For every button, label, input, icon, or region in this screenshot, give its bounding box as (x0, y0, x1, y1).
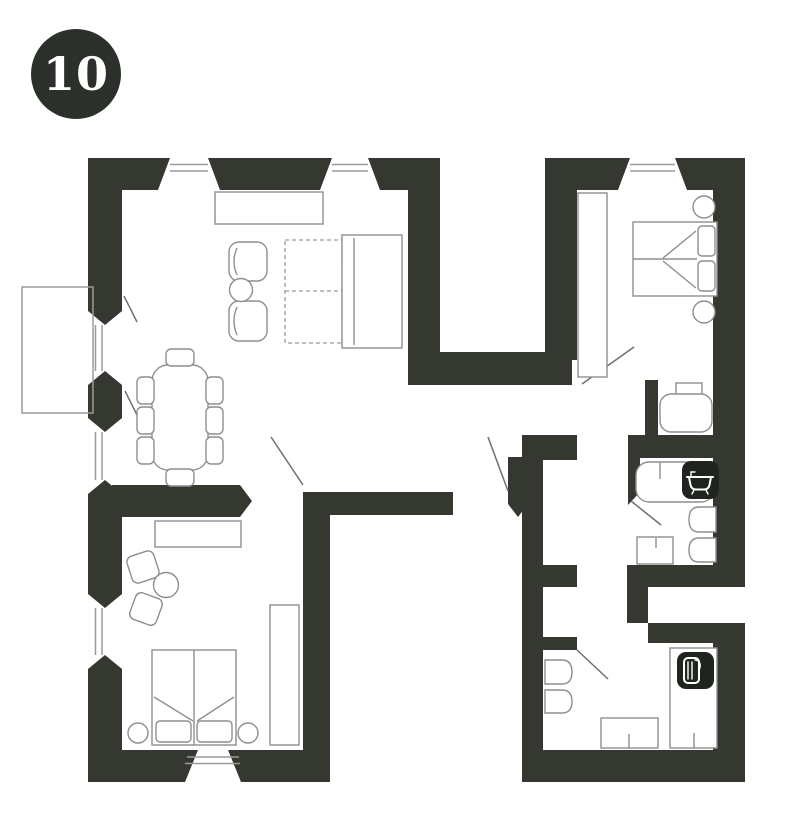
dining-chair-r2 (206, 407, 223, 434)
dining-table (152, 365, 208, 470)
living-console (215, 192, 323, 224)
door-showerroom-leaf (577, 650, 608, 679)
bathtub-badge (682, 461, 719, 499)
wall-hall-horizontal (522, 435, 577, 460)
wall-right-top (713, 158, 745, 587)
floorplan-page: 10 (0, 0, 800, 835)
wall-stub-door (543, 637, 577, 650)
bath-bidet (637, 537, 673, 564)
wall-bedroom1-left (545, 158, 577, 360)
bedroom2-nightstand-2 (238, 723, 258, 743)
bedroom2-pillow-1 (156, 721, 191, 742)
balcony-outline (22, 287, 93, 413)
wall-living-right (408, 158, 440, 385)
bath-basin-1 (689, 507, 716, 532)
wall-wc-left (645, 380, 658, 437)
bath-basin-2 (689, 538, 716, 562)
door-bathroom-leaf (631, 501, 661, 525)
wall-showerroom-top (648, 623, 745, 643)
door-window-leaf (125, 391, 138, 417)
sofa (342, 235, 402, 348)
dining-chair-l1 (137, 377, 154, 404)
unit-number-badge: 10 (31, 29, 121, 119)
floor-plan (0, 0, 800, 835)
wall-bottom-right-wing (522, 750, 745, 782)
door-bedroom2-leaf (271, 437, 303, 485)
dining-chair-bottom (166, 469, 194, 486)
wall-bedroom2-top (112, 485, 252, 517)
bedroom1-nightstand-2 (693, 301, 715, 323)
bedroom1-pillow-1 (698, 226, 715, 256)
door-balcony-leaf (124, 296, 137, 322)
wall-bottom-left-1 (88, 750, 198, 782)
wall-bottom-left-2 (228, 750, 330, 782)
dining-chair-l3 (137, 437, 154, 464)
wall-bedroom2-right (303, 492, 330, 782)
bedroom2-nightstand-1 (128, 723, 148, 743)
bedroom1-wardrobe (578, 193, 607, 377)
bedroom2-chair-2 (128, 591, 164, 627)
bedroom2-pillow-2 (197, 721, 232, 742)
wall-wc-bath-divider (628, 435, 713, 458)
bedroom1-nightstand-1 (693, 196, 715, 218)
side-table (230, 279, 253, 302)
dining-chair-r3 (206, 437, 223, 464)
unit-number-label: 10 (43, 47, 109, 101)
door-hallway-leaf (488, 437, 508, 491)
dining-chair-top (166, 349, 194, 366)
wall-stub-mid (543, 565, 577, 587)
wc-toilet-bowl (660, 394, 712, 432)
wall-top-2 (208, 158, 332, 190)
bedroom2-sideboard (155, 521, 241, 547)
bedroom2-wardrobe (270, 605, 299, 745)
wc-toilet-tank (676, 383, 702, 395)
wall-bath-bottom (627, 565, 745, 587)
bedroom2-round-table (154, 573, 179, 598)
bedroom1-pillow-2 (698, 261, 715, 291)
showerroom-basin-2 (545, 690, 572, 713)
dining-chair-r1 (206, 377, 223, 404)
showerroom-basin-1 (545, 660, 572, 684)
dining-chair-l2 (137, 407, 154, 434)
